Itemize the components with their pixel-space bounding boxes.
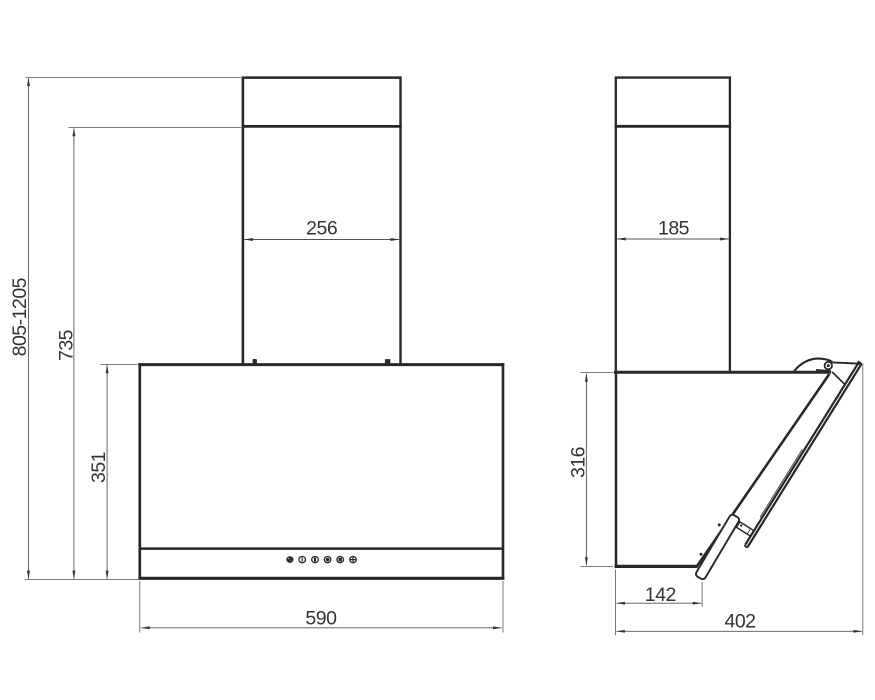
svg-text:316: 316 [567, 447, 589, 478]
svg-text:256: 256 [306, 218, 337, 240]
svg-text:805-1205: 805-1205 [9, 277, 31, 356]
svg-text:402: 402 [724, 611, 755, 633]
svg-text:735: 735 [55, 329, 77, 361]
svg-text:351: 351 [88, 452, 110, 483]
svg-text:185: 185 [658, 218, 690, 240]
svg-text:590: 590 [305, 608, 337, 630]
svg-text:142: 142 [645, 584, 676, 606]
